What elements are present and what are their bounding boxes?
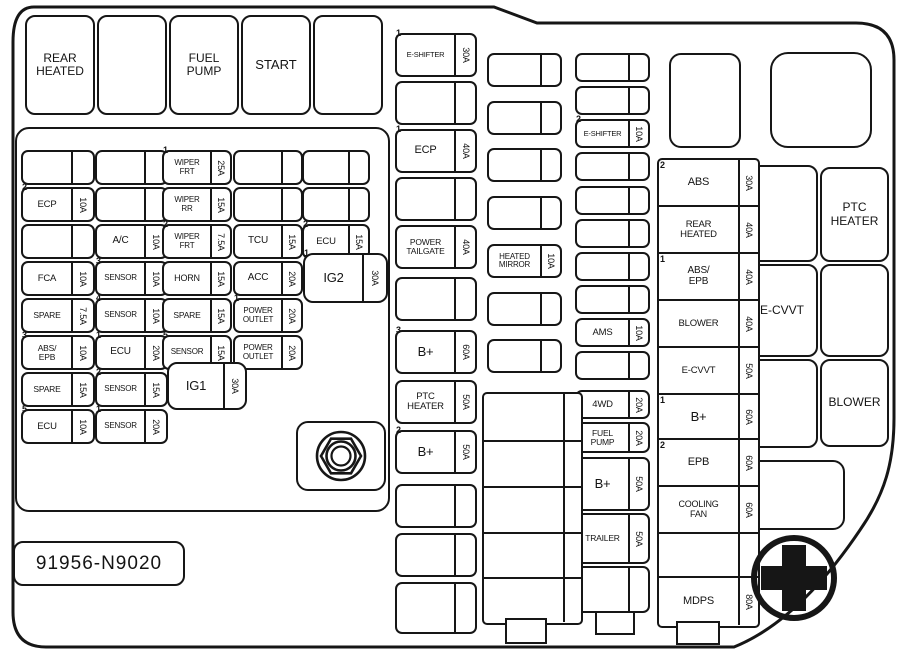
fuse-amp-rating (454, 486, 475, 526)
fuse-label: HEATED MIRROR (489, 246, 540, 276)
block-row-blower: BLOWER40A (659, 299, 758, 346)
fuse-blank (302, 150, 370, 185)
fuse-amp-text: 60A (744, 455, 754, 470)
fuse-amp-rating: 15A (210, 300, 230, 331)
fuse-power-outlet: POWER OUTLET20A1 (233, 298, 303, 333)
fuse-label: B+ (397, 432, 454, 472)
fuse-label (397, 279, 454, 319)
fuse-label: BLOWER (659, 301, 738, 346)
fuse-amp-rating (71, 152, 93, 183)
block-row-abs: ABS30A2 (659, 160, 758, 205)
fuse-amp-rating: 60A (738, 395, 758, 438)
fuse-amp-text: 20A (287, 345, 297, 360)
fuse-amp-rating (628, 287, 648, 312)
fuse-ig1: IG130A (167, 362, 247, 410)
fuse-label: E-SHIFTER (577, 121, 628, 146)
fuse-amp-text: 30A (230, 378, 240, 393)
fuse-amp-rating: 20A (281, 300, 301, 331)
fuse-amp-rating: 60A (738, 487, 758, 532)
relay-rear-heated: REAR HEATED (25, 15, 95, 115)
fuse-amp-text: 15A (216, 345, 226, 360)
fuse-label (484, 442, 563, 486)
fuse-amp-rating (628, 88, 648, 113)
fuse-amp-rating: 20A (281, 337, 301, 368)
connector-tab-center (505, 618, 547, 644)
fuse-amp-rating: 80A (738, 578, 758, 625)
fuse-index-mark: 3 (396, 326, 401, 335)
fuse-amp-rating: 10A (71, 189, 93, 220)
relay-start-label: START (255, 58, 296, 73)
fuse-amp-rating (563, 394, 581, 440)
fuse-amp-rating: 10A (540, 246, 560, 276)
fuse-amp-rating (628, 188, 648, 213)
fuse-label (235, 189, 281, 220)
fuse-label (577, 353, 628, 378)
fuse-amp-rating: 20A (628, 424, 648, 451)
fuse-acc: ACC20A (233, 261, 303, 296)
fuse-amp-rating (628, 55, 648, 80)
fuse-amp-text: 15A (287, 234, 297, 249)
fuse-amp-text: 7.5A (78, 307, 88, 325)
fuse-amp-text: 60A (744, 409, 754, 424)
fuse-label (23, 226, 71, 257)
fuse-blank (302, 187, 370, 222)
fuse-label: ABS/ EPB (659, 254, 738, 299)
fuse-amp-text: 20A (287, 271, 297, 286)
fuse-amp-text: 30A (461, 47, 471, 62)
fuse-index-mark: 1 (660, 396, 665, 405)
fuse-blank (487, 148, 562, 182)
fuse-label: 4WD (577, 392, 628, 417)
fuse-amp-text: 10A (151, 271, 161, 286)
fuse-blank (21, 150, 95, 185)
fuse-amp-text: 80A (744, 594, 754, 609)
fuse-b+: B+50A2 (395, 430, 477, 474)
fuse-amp-text: 50A (634, 476, 644, 491)
fuse-wiper-frt: WIPER FRT25A1 (162, 150, 232, 185)
fuse-blank (575, 53, 650, 82)
fuse-blank (575, 351, 650, 380)
fuse-label (484, 579, 563, 622)
fuse-label: ECU (97, 337, 144, 368)
relay-fuel-pump: FUEL PUMP (169, 15, 239, 115)
fuse-index-mark: 4 (96, 294, 101, 303)
fuse-label: IG2 (305, 255, 362, 301)
fuse-index-mark: 2 (303, 220, 308, 229)
fuse-amp-rating (540, 341, 560, 371)
fuse-amp-rating: 15A (210, 189, 230, 220)
fuse-blank (487, 101, 562, 135)
fuse-index-mark: 2 (576, 115, 581, 124)
fuse-amp-rating (628, 154, 648, 179)
fuse-label: SPARE (164, 300, 210, 331)
fuse-amp-text: 10A (78, 419, 88, 434)
fuse-amp-rating (454, 279, 475, 319)
fuse-label (397, 83, 454, 123)
fuse-amp-rating: 60A (454, 332, 475, 372)
fuse-amp-text: 15A (216, 308, 226, 323)
fuse-blank (575, 285, 650, 314)
block-row-abs-epb: ABS/ EPB40A1 (659, 252, 758, 299)
fuse-index-mark: 1 (396, 29, 401, 38)
fuse-amp-rating (454, 83, 475, 123)
fuse-ecp: ECP10A2 (21, 187, 95, 222)
block-row-b+: B+60A1 (659, 393, 758, 438)
relay-e-cvvt-label: E-CVVT (760, 304, 804, 317)
fuse-amp-rating: 40A (738, 207, 758, 252)
relay-start: START (241, 15, 311, 115)
fuse-b+: B+60A3 (395, 330, 477, 374)
fuse-amp-rating: 10A (71, 337, 93, 368)
fuse-blank (575, 252, 650, 281)
fuse-power-tailgate: POWER TAILGATE40A (395, 225, 477, 269)
fuse-amp-rating (628, 353, 648, 378)
fuse-label (235, 152, 281, 183)
fuse-amp-rating: 40A (738, 254, 758, 299)
fuse-amp-rating: 20A (144, 411, 166, 442)
fuse-label (397, 584, 454, 632)
relay-fuel-pump-label: FUEL PUMP (187, 52, 222, 79)
fuse-amp-rating (540, 150, 560, 180)
fuse-label (577, 254, 628, 279)
fuse-blank (487, 292, 562, 326)
fuse-4wd: 4WD20A (575, 390, 650, 419)
fuse-amp-text: 20A (634, 397, 644, 412)
fuse-amp-rating: 50A (738, 348, 758, 393)
fuse-label (304, 189, 348, 220)
fuse-amp-rating: 10A (71, 263, 93, 294)
fuse-blank (233, 187, 303, 222)
fuse-label (577, 568, 628, 611)
fuse-label: POWER TAILGATE (397, 227, 454, 267)
fuse-amp-text: 60A (461, 344, 471, 359)
fuse-trailer: TRAILER50A (575, 513, 650, 564)
fuse-label: FCA (23, 263, 71, 294)
fuse-label: WIPER FRT (164, 226, 210, 257)
relay-blank-2 (313, 15, 383, 115)
fuse-label (577, 188, 628, 213)
fuse-label (659, 534, 738, 576)
fuse-blank (95, 150, 168, 185)
fuse-amp-rating: 40A (738, 301, 758, 346)
fuse-index-mark: 1 (660, 255, 665, 264)
fuse-label: REAR HEATED (659, 207, 738, 252)
fuse-ig2: IG230A1 (303, 253, 388, 303)
fuse-a-c: A/C10A (95, 224, 168, 259)
fuse-label (577, 287, 628, 312)
fuse-blank (575, 86, 650, 115)
fuse-amp-text: 15A (216, 197, 226, 212)
fuse-amp-rating (540, 103, 560, 133)
fuse-amp-rating (540, 198, 560, 228)
block-row-rear-heated: REAR HEATED40A (659, 205, 758, 252)
fuse-label: TRAILER (577, 515, 628, 562)
fuse-label: E-CVVT (659, 348, 738, 393)
fuse-amp-rating (454, 584, 475, 632)
part-number-label: 91956-N9020 (13, 541, 185, 586)
fuse-label: ECU (23, 411, 71, 442)
fuse-amp-rating (540, 294, 560, 324)
fuse-amp-rating: 50A (454, 432, 475, 472)
fuse-amp-rating: 40A (454, 131, 475, 171)
fuse-label: EPB (659, 440, 738, 485)
fuse-amp-rating (563, 579, 581, 622)
center-bottom-block (482, 392, 583, 625)
fuse-amp-rating: 15A (144, 374, 166, 405)
fuse-label (97, 189, 144, 220)
fuse-amp-rating (738, 534, 758, 576)
fuse-index-mark: 1 (396, 125, 401, 134)
fuse-blank (395, 277, 477, 321)
fuse-index-mark: 2 (22, 183, 27, 192)
fuse-label: ECP (23, 189, 71, 220)
fuse-amp-text: 15A (151, 382, 161, 397)
fuse-wiper-rr: WIPER RR15A (162, 187, 232, 222)
fuse-label: ACC (235, 263, 281, 294)
fuse-e-shifter: E-SHIFTER10A2 (575, 119, 650, 148)
fuse-amp-text: 15A (354, 234, 364, 249)
fuse-index-mark: 2 (396, 426, 401, 435)
fuse-amp-rating: 7.5A (71, 300, 93, 331)
relay-blank-1 (97, 15, 167, 115)
fuse-heated-mirror: HEATED MIRROR10A (487, 244, 562, 278)
fuse-amp-rating (628, 568, 648, 611)
fuse-ecu: ECU10A5 (21, 409, 95, 444)
fuse-label (489, 55, 540, 85)
block-row-e-cvvt: E-CVVT50A (659, 346, 758, 393)
fuse-amp-text: 25A (216, 160, 226, 175)
fuse-spare: SPARE15A (21, 372, 95, 407)
fuse-amp-text: 50A (461, 444, 471, 459)
fuse-amp-rating: 50A (454, 382, 475, 422)
fuse-amp-text: 20A (634, 430, 644, 445)
fuse-amp-rating: 30A (362, 255, 386, 301)
fuse-label: SPARE (23, 374, 71, 405)
fuse-label: E-SHIFTER (397, 35, 454, 75)
fuse-amp-rating: 20A (628, 392, 648, 417)
fuse-blank (575, 219, 650, 248)
fuse-index-mark: 2 (660, 161, 665, 170)
fuse-label (489, 294, 540, 324)
block-row-cooling-fan: COOLING FAN60A (659, 485, 758, 532)
block-row-blank (484, 532, 581, 577)
fuse-label (577, 88, 628, 113)
fuse-ecu: ECU20A1 (95, 335, 168, 370)
fuse-amp-rating: 10A (628, 121, 648, 146)
fuse-label: B+ (577, 459, 628, 509)
fuse-amp-rating (281, 152, 301, 183)
fuse-label: ECP (397, 131, 454, 171)
fuse-amp-text: 40A (744, 269, 754, 284)
fuse-blank (575, 186, 650, 215)
fuse-blank (21, 224, 95, 259)
fuse-label (577, 154, 628, 179)
fuse-index-mark: 5 (163, 331, 168, 340)
fuse-amp-text: 10A (78, 197, 88, 212)
fuse-amp-text: 15A (78, 382, 88, 397)
relay-rear-heated-label: REAR HEATED (36, 52, 84, 79)
fuse-amp-text: 20A (151, 419, 161, 434)
fuse-amp-rating (454, 179, 475, 219)
fuse-label: AMS (577, 320, 628, 345)
fuse-label: TCU (235, 226, 281, 257)
fuse-label (304, 152, 348, 183)
fuse-amp-rating: 60A (738, 440, 758, 485)
fuse-label (484, 394, 563, 440)
fuse-spare: SPARE7.5A (21, 298, 95, 333)
fuse-label: WIPER RR (164, 189, 210, 220)
fuse-label (397, 486, 454, 526)
fuse-blank (395, 81, 477, 125)
fuse-tcu: TCU15A (233, 224, 303, 259)
fuse-label (577, 221, 628, 246)
fuse-label: POWER OUTLET (235, 300, 281, 331)
fuse-amp-rating: 30A (738, 160, 758, 205)
fuse-amp-rating: 10A (71, 411, 93, 442)
fuse-ams: AMS10A (575, 318, 650, 347)
fuse-e-shifter: E-SHIFTER30A1 (395, 33, 477, 77)
fuse-label: ABS (659, 160, 738, 205)
block-row-blank (484, 486, 581, 532)
fuse-amp-rating (71, 226, 93, 257)
fuse-index-mark: 3 (96, 257, 101, 266)
fuse-amp-rating: 40A (454, 227, 475, 267)
fuse-sensor: SENSOR20A1 (95, 409, 168, 444)
fuse-label: B+ (397, 332, 454, 372)
fuse-ecp: ECP40A1 (395, 129, 477, 173)
fuse-amp-text: 50A (744, 363, 754, 378)
fuse-label: COOLING FAN (659, 487, 738, 532)
relay-blank-square (770, 52, 872, 148)
fuse-label: WIPER FRT (164, 152, 210, 183)
fuse-amp-rating (563, 442, 581, 486)
fuse-amp-rating: 15A (71, 374, 93, 405)
fuse-blank (487, 53, 562, 87)
fuse-ptc-heater: PTC HEATER50A (395, 380, 477, 424)
fuse-label: ABS/ EPB (23, 337, 71, 368)
fuse-blank (395, 177, 477, 221)
fuse-amp-rating (563, 488, 581, 532)
fuse-box-diagram: 91956-N9020 REAR HEATEDFUEL PUMPSTARTPTC… (0, 0, 900, 658)
relay-blower: BLOWER (820, 359, 889, 447)
fuse-label: A/C (97, 226, 144, 257)
fuse-amp-text: 7.5A (216, 233, 226, 251)
fuse-amp-text: 50A (461, 394, 471, 409)
block-row-blank (659, 532, 758, 576)
fuse-amp-text: 10A (151, 234, 161, 249)
fuse-index-mark: 2 (96, 368, 101, 377)
relay-blank-top-right (669, 53, 741, 148)
fuse-label: SENSOR (97, 411, 144, 442)
connector-tab-mid (595, 611, 635, 635)
fuse-wiper-frt: WIPER FRT7.5A2 (162, 224, 232, 259)
fuse-spare: SPARE15A (162, 298, 232, 333)
fuse-label (397, 179, 454, 219)
fuse-amp-text: 20A (151, 345, 161, 360)
relay-ptc-heater-label: PTC HEATER (831, 201, 879, 228)
fuse-blank (233, 150, 303, 185)
fuse-index-mark: 1 (163, 146, 168, 155)
fuse-label: MDPS (659, 578, 738, 625)
fuse-amp-text: 15A (216, 271, 226, 286)
fuse-amp-text: 10A (634, 325, 644, 340)
fuse-amp-rating (281, 189, 301, 220)
fuse-amp-rating (628, 221, 648, 246)
fuse-horn: HORN15A (162, 261, 232, 296)
fuse-label (489, 103, 540, 133)
fuse-amp-rating (628, 254, 648, 279)
fuse-amp-rating (348, 189, 368, 220)
connector-tab-right (676, 621, 720, 645)
fuse-label: PTC HEATER (397, 382, 454, 422)
fuse-amp-rating: 50A (628, 515, 648, 562)
fuse-amp-rating: 25A (210, 152, 230, 183)
fuse-label: IG1 (169, 364, 223, 408)
fuse-amp-text: 20A (287, 308, 297, 323)
fuse-label: SENSOR (97, 374, 144, 405)
fuse-label: SENSOR (97, 300, 144, 331)
fuse-label (23, 152, 71, 183)
fuse-fuel-pump: FUEL PUMP20A (575, 422, 650, 453)
fuse-index-mark: 1 (96, 405, 101, 414)
fuse-label: SPARE (23, 300, 71, 331)
block-row-blank (484, 440, 581, 486)
fuse-label: SENSOR (97, 263, 144, 294)
nut-housing (296, 421, 386, 491)
fuse-blank (487, 196, 562, 230)
fuse-label: B+ (659, 395, 738, 438)
fuse-amp-text: 40A (461, 239, 471, 254)
fuse-amp-text: 40A (744, 316, 754, 331)
relay-blank-right-2 (820, 264, 889, 357)
fuse-index-mark: 1 (234, 294, 239, 303)
fuse-index-mark: 1 (304, 249, 309, 258)
fuse-label (489, 150, 540, 180)
fuse-blank (395, 484, 477, 528)
fuse-b+: B+50A4 (575, 457, 650, 511)
fuse-amp-rating: 50A (628, 459, 648, 509)
fuse-amp-text: 10A (634, 126, 644, 141)
fuse-amp-text: 10A (546, 253, 556, 268)
fuse-amp-rating: 15A (281, 226, 301, 257)
fuse-label: HORN (164, 263, 210, 294)
fuse-amp-rating: 20A (281, 263, 301, 294)
fuse-amp-text: 30A (744, 175, 754, 190)
fuse-amp-rating: 7.5A (210, 226, 230, 257)
fuse-label (484, 488, 563, 532)
fuse-label (484, 534, 563, 577)
fuse-label (489, 341, 540, 371)
fuse-blank (95, 187, 168, 222)
fuse-blank (395, 533, 477, 577)
block-row-mdps: MDPS80A (659, 576, 758, 625)
fuse-amp-rating: 30A (454, 35, 475, 75)
fuse-blank (487, 339, 562, 373)
fuse-amp-text: 10A (78, 345, 88, 360)
fuse-amp-rating (348, 152, 368, 183)
fuse-amp-rating (563, 534, 581, 577)
fuse-abs-epb: ABS/ EPB10A3 (21, 335, 95, 370)
fuse-label (97, 152, 144, 183)
block-row-blank (484, 577, 581, 622)
fuse-amp-text: 40A (744, 222, 754, 237)
fuse-amp-text: 10A (151, 308, 161, 323)
fuse-blank (395, 582, 477, 634)
fuse-amp-rating: 10A (628, 320, 648, 345)
fuse-blank (575, 152, 650, 181)
fuse-label (577, 55, 628, 80)
relay-blower-label: BLOWER (828, 396, 880, 409)
